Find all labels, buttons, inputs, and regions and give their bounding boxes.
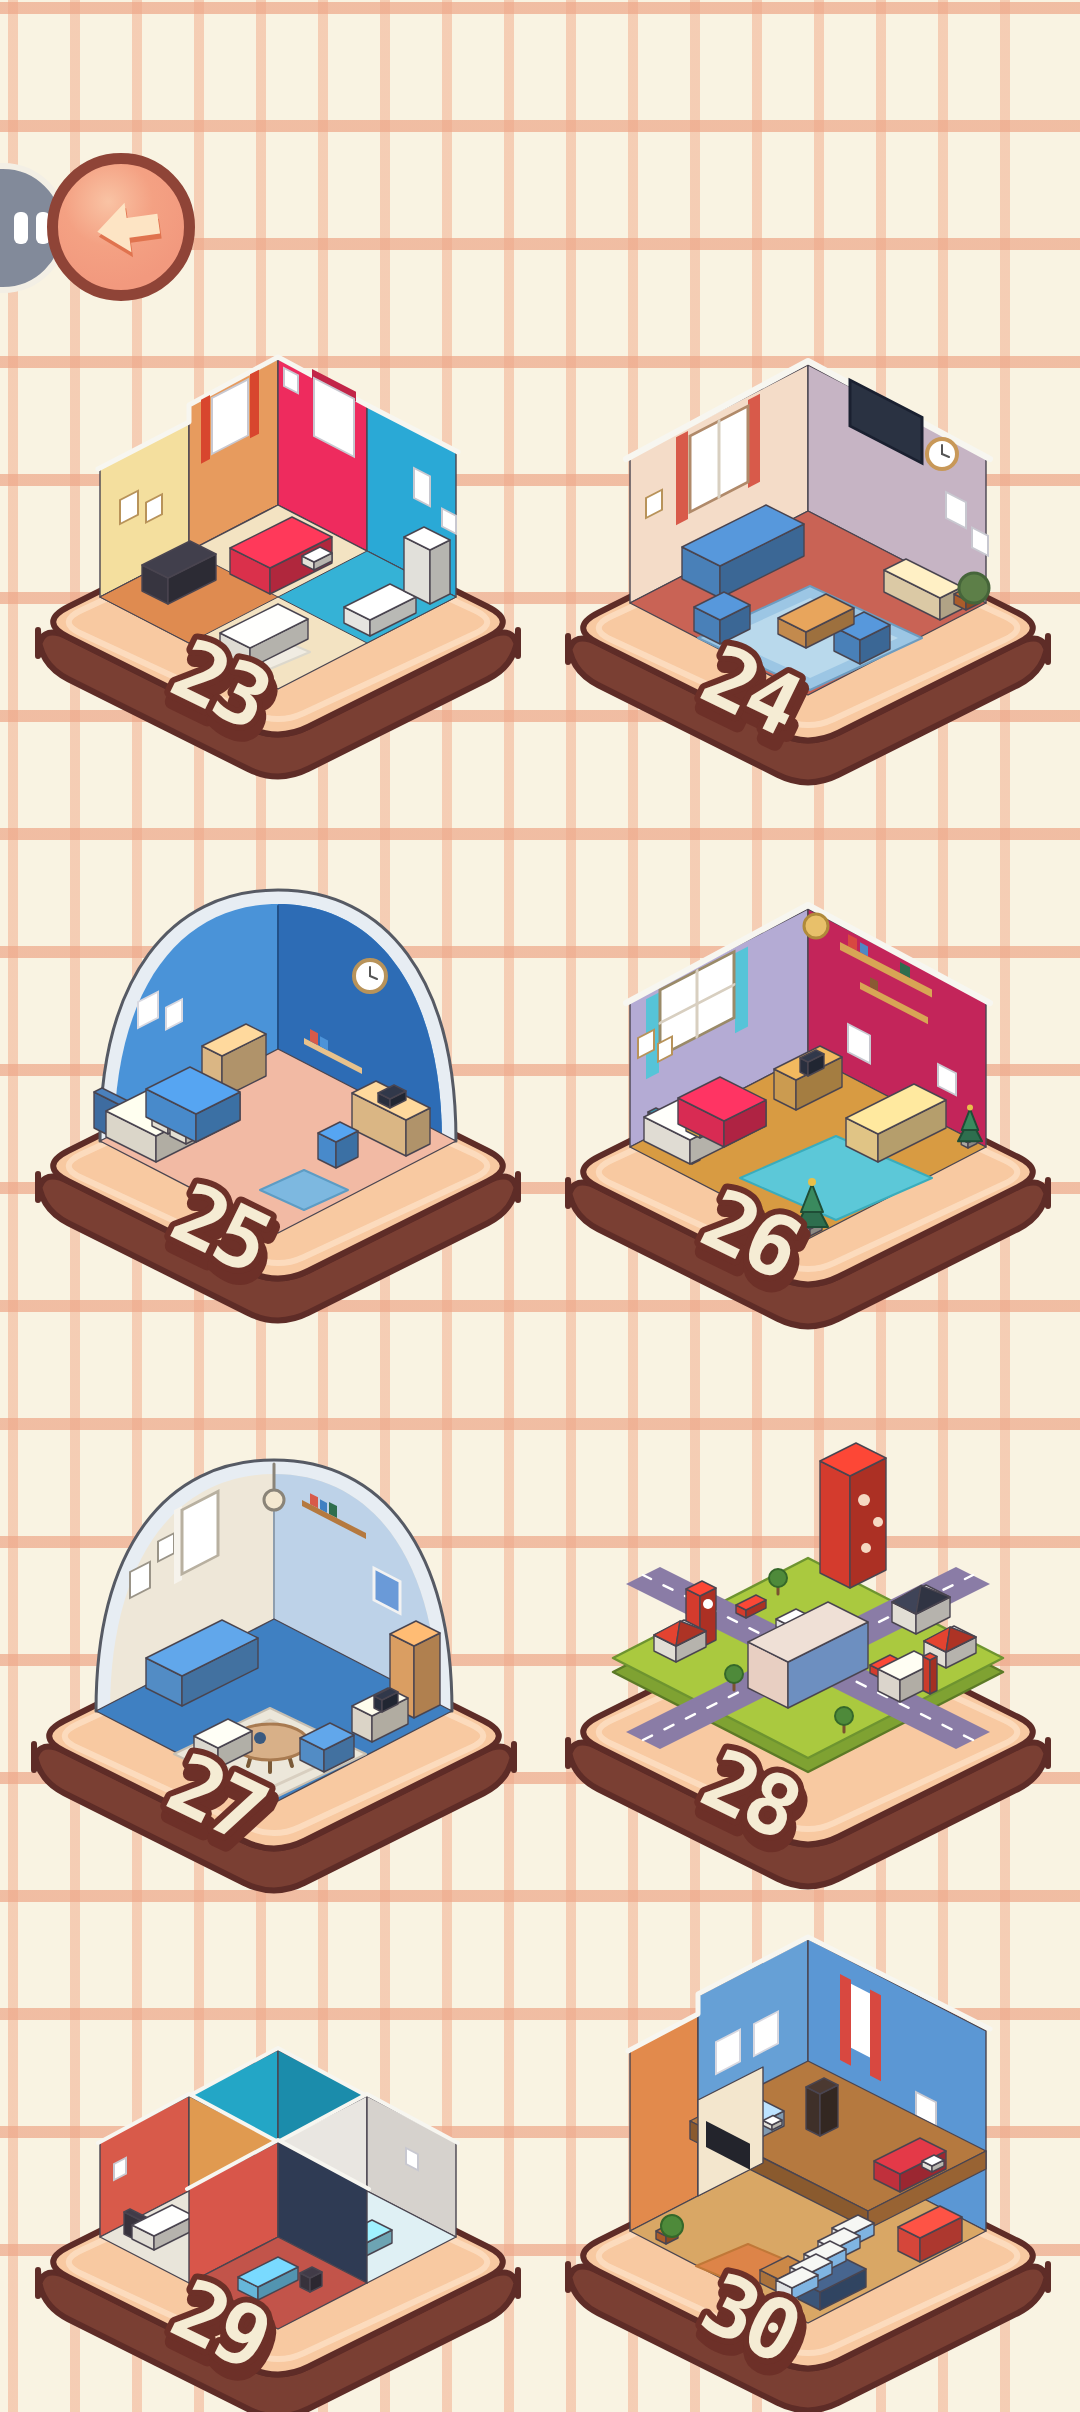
level-art-27: 27 27 <box>14 1376 534 1906</box>
level-tile-25[interactable]: 25 25 <box>18 806 538 1336</box>
level-tile-29[interactable]: 29 29 <box>18 1902 538 2412</box>
back-button[interactable] <box>47 153 195 301</box>
level-diorama <box>613 1443 1003 1772</box>
level-art-26: 26 26 <box>548 812 1068 1342</box>
level-art-29: 29 29 <box>18 1902 538 2412</box>
level-tile-26[interactable]: 26 26 <box>548 812 1068 1342</box>
level-tile-23[interactable]: 23 23 <box>18 262 538 792</box>
level-art-23: 23 23 <box>18 262 538 792</box>
level-art-30: 30 30 <box>548 1896 1068 2412</box>
level-art-24: 24 24 <box>548 268 1068 798</box>
level-tile-30[interactable]: 30 30 <box>548 1896 1068 2412</box>
level-tile-24[interactable]: 24 24 <box>548 268 1068 798</box>
level-art-25: 25 25 <box>18 806 538 1336</box>
level-tile-28[interactable]: 28 28 <box>548 1372 1068 1902</box>
level-tile-27[interactable]: 27 27 <box>14 1376 534 1906</box>
level-art-28: 28 28 <box>548 1372 1068 1902</box>
back-arrow-icon <box>78 184 164 270</box>
